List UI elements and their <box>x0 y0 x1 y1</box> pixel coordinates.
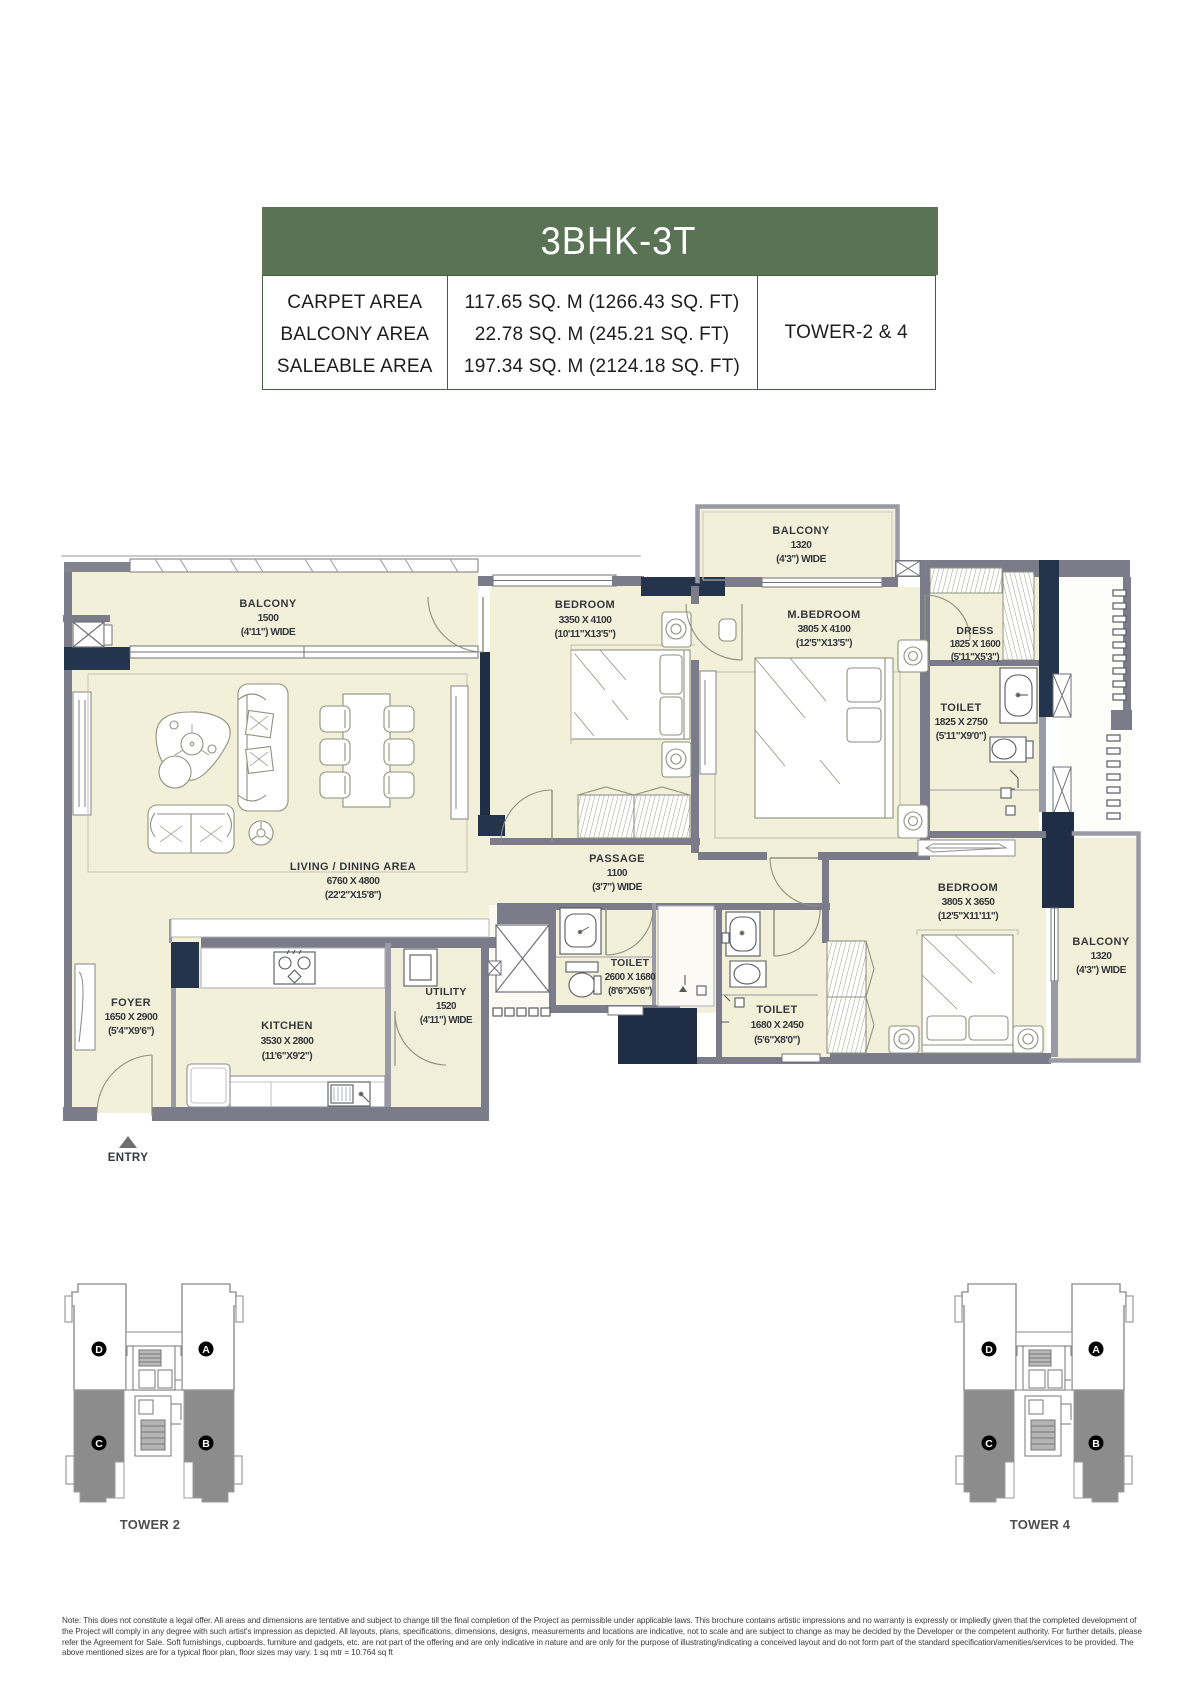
svg-text:1680 X 2450: 1680 X 2450 <box>751 1020 805 1031</box>
svg-text:(22'2"X15'8"): (22'2"X15'8") <box>325 890 381 901</box>
svg-text:ENTRY: ENTRY <box>108 1152 149 1164</box>
svg-text:TOWER 4: TOWER 4 <box>1010 1517 1071 1532</box>
svg-text:TOILET: TOILET <box>940 702 981 714</box>
svg-text:1520: 1520 <box>436 1001 457 1012</box>
svg-text:DRESS: DRESS <box>956 626 993 637</box>
svg-text:1320: 1320 <box>1091 951 1113 962</box>
svg-text:KITCHEN: KITCHEN <box>261 1020 313 1032</box>
svg-text:TOILET: TOILET <box>611 958 650 969</box>
svg-text:2600 X 1680: 2600 X 1680 <box>605 972 657 983</box>
svg-text:TOILET: TOILET <box>756 1004 797 1016</box>
svg-text:3805 X 3650: 3805 X 3650 <box>942 897 996 908</box>
svg-text:(3'7") WIDE: (3'7") WIDE <box>592 882 643 893</box>
svg-text:1100: 1100 <box>607 868 628 879</box>
svg-text:(4'3") WIDE: (4'3") WIDE <box>776 554 827 565</box>
svg-text:1320: 1320 <box>791 540 813 551</box>
svg-text:M.BEDROOM: M.BEDROOM <box>787 609 860 621</box>
svg-text:(12'5"X11'11"): (12'5"X11'11") <box>938 911 998 922</box>
svg-text:BALCONY: BALCONY <box>1072 936 1129 948</box>
svg-text:BEDROOM: BEDROOM <box>555 599 615 611</box>
svg-text:PASSAGE: PASSAGE <box>589 853 645 865</box>
svg-text:BALCONY: BALCONY <box>772 525 829 537</box>
svg-text:(10'11"X13'5"): (10'11"X13'5") <box>555 629 616 640</box>
svg-text:LIVING / DINING AREA: LIVING / DINING AREA <box>290 861 416 873</box>
svg-text:(11'6"X9'2"): (11'6"X9'2") <box>262 1051 313 1062</box>
svg-text:TOWER 2: TOWER 2 <box>120 1517 180 1532</box>
svg-text:(4'11") WIDE: (4'11") WIDE <box>241 627 296 638</box>
svg-text:UTILITY: UTILITY <box>425 987 466 998</box>
svg-text:1825 X 1600: 1825 X 1600 <box>950 639 1002 650</box>
svg-text:(4'11") WIDE: (4'11") WIDE <box>420 1015 473 1026</box>
svg-text:(5'4"X9'6"): (5'4"X9'6") <box>108 1026 154 1037</box>
svg-text:FOYER: FOYER <box>111 997 151 1009</box>
svg-text:1500: 1500 <box>258 613 280 624</box>
svg-text:(8'6"X5'6"): (8'6"X5'6") <box>608 986 652 997</box>
svg-text:1650 X 2900: 1650 X 2900 <box>105 1012 159 1023</box>
svg-text:3350 X 4100: 3350 X 4100 <box>559 615 613 626</box>
svg-text:3530 X 2800: 3530 X 2800 <box>261 1036 315 1047</box>
svg-text:BALCONY: BALCONY <box>239 598 296 610</box>
svg-text:6760 X 4800: 6760 X 4800 <box>327 876 381 887</box>
svg-text:(5'6"X8'0"): (5'6"X8'0") <box>754 1035 800 1046</box>
svg-text:1825 X 2750: 1825 X 2750 <box>935 717 989 728</box>
svg-text:(5'11"X5'3"): (5'11"X5'3") <box>951 652 999 663</box>
svg-text:3805 X 4100: 3805 X 4100 <box>798 624 852 635</box>
svg-text:BEDROOM: BEDROOM <box>938 882 998 894</box>
svg-text:(4'3") WIDE: (4'3") WIDE <box>1076 965 1127 976</box>
svg-text:(12'5"X13'5"): (12'5"X13'5") <box>796 638 852 649</box>
svg-text:(5'11"X9'0"): (5'11"X9'0") <box>936 731 987 742</box>
